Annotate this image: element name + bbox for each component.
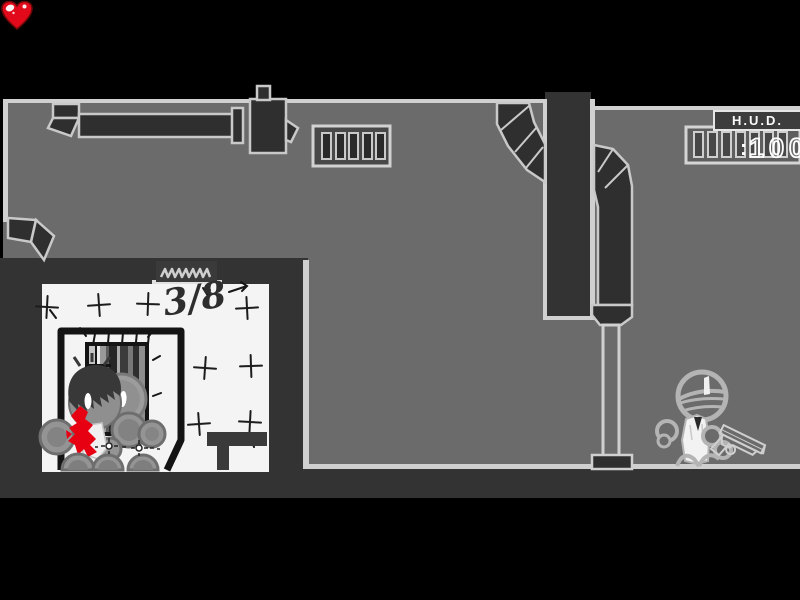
helmet-plume [704, 376, 710, 395]
hud-title: H.U.D. [713, 110, 800, 131]
heart-icon [0, 0, 34, 32]
game-stage[interactable]: H.U.D. : 100 3/8 [0, 0, 800, 600]
game-scene [0, 0, 800, 600]
health-value: 100 [749, 133, 800, 164]
pillar [543, 92, 595, 320]
health-separator: : [740, 137, 747, 161]
vent-grille [313, 126, 390, 166]
health-counter: : 100 [740, 133, 800, 164]
